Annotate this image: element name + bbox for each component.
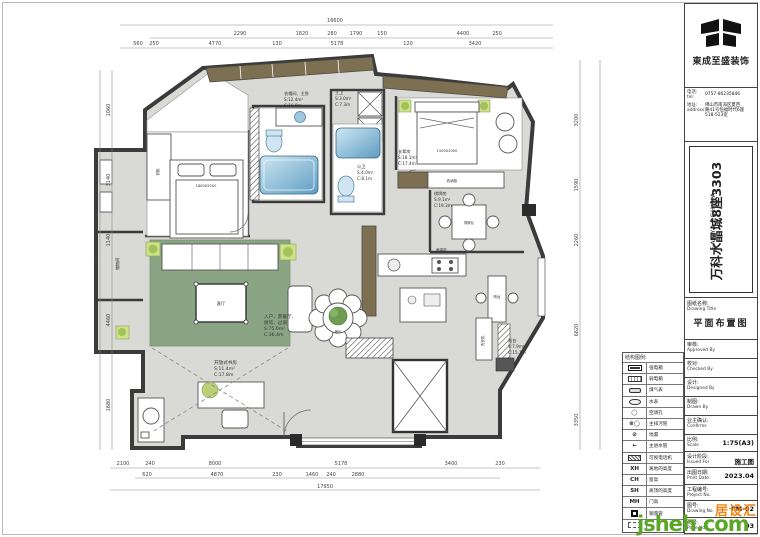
drawing-title: 平面布置图 — [687, 316, 755, 329]
water-inlet-pipe-icon: ← — [623, 441, 647, 451]
room-girth: C:16.8m — [284, 103, 302, 108]
row-label: 业主确认: — [687, 417, 755, 424]
dim: 240 — [145, 461, 155, 467]
legend-row: 强电箱 — [623, 362, 683, 373]
dim: 3420 — [469, 41, 482, 47]
door-height-code: MH — [623, 497, 647, 507]
drawing-title-label: 图纸名称: — [687, 300, 755, 307]
dim: 230 — [495, 461, 505, 467]
row-label: 工程编号: — [687, 486, 755, 493]
room-area: S:11.4m² — [214, 366, 235, 372]
print-date-row: 出图日期: Print Date 2023.04 — [685, 468, 757, 485]
dim: 250 — [149, 41, 159, 47]
room-label: 开放式书房 — [214, 359, 237, 366]
drawing-title-section: 图纸名称: Drawing Title 平面布置图 — [685, 298, 757, 340]
legend-row: 钢落管 — [623, 507, 683, 518]
video-intercom-icon — [623, 453, 647, 463]
room-girth: C:19.3m — [434, 203, 452, 208]
room-area: S:75.0m² — [264, 326, 285, 332]
dim: 4460 — [106, 314, 112, 327]
legend-row: XH离地的高度 — [623, 463, 683, 474]
company-name: 東成至盛装饰 — [685, 54, 757, 67]
address-row: 地址:address: 佛山市南海区夏西 路41号恒福时代6座 518-523室 — [687, 103, 755, 118]
steel-downpipe-icon — [623, 508, 647, 518]
sideboard: 收纳柜 — [398, 172, 504, 188]
dim: 280 — [327, 31, 337, 37]
dashed-box-icon — [623, 520, 647, 530]
drawing-no-value: PM-02 — [731, 505, 754, 513]
legend-row — [623, 519, 683, 530]
water-meter-icon — [623, 397, 647, 407]
legend-label: 钢落管 — [647, 511, 683, 517]
room-girth: C:17.4m — [398, 161, 416, 166]
dim-top-total: 16600 — [327, 18, 343, 24]
dim: 4870 — [211, 472, 224, 478]
legend-row: ←主进水管 — [623, 440, 683, 451]
legend-row: CH窗高 — [623, 474, 683, 485]
legend-label: 强电箱 — [647, 365, 683, 371]
bed-size-label: 1500X2000 — [437, 149, 458, 153]
row-label-en: Designed By — [687, 386, 755, 391]
room-label: 入户、客餐厅、 — [264, 313, 296, 320]
dim-bottom-total: 17950 — [317, 484, 333, 490]
legend-label: 煤气表 — [647, 387, 683, 393]
dim: 2290 — [234, 31, 247, 37]
drawing-title-label-en: Drawing Title — [687, 307, 755, 312]
legend-label: 可视电话机 — [647, 455, 683, 461]
dim: 2880 — [352, 472, 365, 478]
dim: 5178 — [335, 461, 348, 467]
room-area: S:7.9m² — [508, 344, 525, 349]
address-label: 地址:address: — [687, 103, 705, 118]
company-logo-section: 東成至盛装饰 — [685, 4, 757, 88]
ac-hole-icon: ◯ — [623, 408, 647, 418]
room-label: 阳台 — [508, 337, 516, 344]
living-room: 客厅 — [146, 240, 312, 346]
dining-label: 餐厅 — [335, 329, 342, 334]
legend-row: ◯空调孔 — [623, 407, 683, 418]
dim: 1790 — [350, 31, 363, 37]
room-girth: C:36.4m — [264, 332, 284, 338]
room-girth: C:8.1m — [357, 176, 372, 181]
height-below-ceiling-code: SH — [623, 486, 647, 496]
bar-label: 吧台 — [493, 294, 501, 299]
legend-label: 主排污管 — [647, 421, 683, 427]
page-no-row: 页号: Page No. 03 — [685, 518, 757, 535]
legend-label: 离地的高度 — [647, 466, 683, 472]
drawn-by-row: 制图: Drawn By — [685, 397, 757, 416]
address-value: 佛山市南海区夏西 路41号恒福时代6座 518-523室 — [705, 103, 755, 118]
phone-label: 电话:tel: — [687, 90, 705, 100]
floor-drain-icon: ⊘ — [623, 430, 647, 440]
row-label: 校对: — [687, 360, 755, 367]
drawing-sheet: 1800X2000 衣柜 1500X2000 — [0, 0, 760, 537]
dim: 120 — [403, 41, 413, 47]
issued-for-value: 施工图 — [735, 456, 755, 466]
legend-row: 可视电话机 — [623, 452, 683, 463]
dim: 1060 — [106, 104, 112, 117]
checked-by-row: 校对: Checked By — [685, 359, 757, 378]
project-location: SANYA, CHINA — [709, 171, 719, 271]
row-label-en: Confirms — [687, 424, 755, 429]
room-girth: C:17.8m — [214, 372, 234, 378]
row-label: 审核: — [687, 341, 755, 348]
dim: 620 — [142, 472, 152, 478]
dim: 1820 — [296, 31, 309, 37]
dim: 150 — [377, 31, 387, 37]
weak-power-box-icon — [623, 374, 647, 384]
legend-row: ⊗◯主排污管 — [623, 418, 683, 429]
strong-power-box-icon — [623, 363, 647, 373]
designed-by-row: 设计: Designed By — [685, 378, 757, 397]
chess-table-label: 棋牌台 — [464, 220, 474, 225]
dim: 8000 — [209, 461, 222, 467]
room-label: 衣帽间、主卧 — [284, 90, 309, 97]
drawing-no-row: 图号: Drawing No. PM-02 — [685, 501, 757, 518]
room-label: 主卫 — [335, 89, 343, 95]
dim: 250 — [492, 31, 502, 37]
dim: 3400 — [445, 461, 458, 467]
legend-row: ⊘地漏 — [623, 429, 683, 440]
living-label: 客厅 — [217, 300, 225, 307]
height-above-floor-code: XH — [623, 464, 647, 474]
wardrobe-label: 衣柜 — [155, 168, 160, 176]
dim: 2260 — [574, 234, 580, 247]
company-contact-section: 电话:tel: 0757-86235846 地址:address: 佛山市南海区… — [685, 88, 757, 142]
project-no-row: 工程编号: Project No. — [685, 485, 757, 502]
dim: 4770 — [209, 41, 222, 47]
dim: 230 — [272, 472, 282, 478]
room-label: 厨房、过道 — [264, 319, 287, 326]
legend-panel: 结构图例: 强电箱 弱电箱 煤气表 水表 ◯空调孔 ⊗◯主排污管 ⊘地漏 ←主进… — [622, 352, 684, 533]
room-girth: C:7.3m — [335, 102, 350, 107]
floor-plan: 1800X2000 衣柜 1500X2000 — [0, 0, 622, 537]
row-label: 设计: — [687, 379, 755, 386]
scale-value: 1:75(A3) — [722, 439, 754, 447]
phone-row: 电话:tel: 0757-86235846 — [687, 90, 755, 100]
dim: 4400 — [457, 31, 470, 37]
row-label-en: Approved By — [687, 348, 755, 353]
legend-title: 结构图例: — [623, 353, 683, 362]
dim: 1590 — [574, 179, 580, 192]
dim-left-total: 11480 — [94, 254, 100, 270]
project-name-box: 万科水晶城8座3303 SANYA, CHINA — [689, 146, 753, 293]
legend-label: 窗高 — [647, 477, 683, 483]
row-label: 制图: — [687, 398, 755, 405]
dim: 3140 — [106, 174, 112, 187]
legend-row: 水表 — [623, 396, 683, 407]
room-area: S:18.1m² — [398, 155, 417, 160]
room-label: 棋牌房 — [434, 190, 447, 197]
window-height-code: CH — [623, 475, 647, 485]
approved-by-row: 审核: Approved By — [685, 340, 757, 359]
dim: 1140 — [106, 234, 112, 247]
legend-row: MH门高 — [623, 496, 683, 507]
dim: 3200 — [574, 114, 580, 127]
sewage-pipe-icon: ⊗◯ — [623, 419, 647, 429]
legend-label: 主进水管 — [647, 443, 683, 449]
room-area: S:9.1m² — [434, 197, 451, 202]
dim: 6620 — [574, 324, 580, 337]
dim: 560 — [133, 41, 143, 47]
print-date-value: 2023.04 — [724, 472, 754, 480]
owner-confirm-row: 业主确认: Confirms — [685, 416, 757, 435]
scale-row: 比例: Scale 1:75(A3) — [685, 435, 757, 452]
gas-meter-icon — [623, 385, 647, 395]
legend-label: 水表 — [647, 399, 683, 405]
legend-label: 空调孔 — [647, 410, 683, 416]
sideboard-label: 收纳柜 — [447, 178, 458, 183]
row-label-en: Drawn By — [687, 405, 755, 410]
mahjong-label: 麻将机 — [436, 247, 447, 252]
legend-label: 离顶的高度 — [647, 488, 683, 494]
dim: 3350 — [574, 414, 580, 427]
room-area: S:4.0m² — [357, 170, 374, 175]
project-name-section: 万科水晶城8座3303 SANYA, CHINA — [685, 142, 757, 298]
legend-label: 弱电箱 — [647, 376, 683, 382]
dim: 1680 — [106, 399, 112, 412]
washer-label: 洗衣机 — [480, 335, 485, 346]
legend-row: SH离顶的高度 — [623, 485, 683, 496]
company-logo-icon — [699, 18, 743, 48]
room-girth: C:15.1m — [508, 350, 526, 355]
dim: 130 — [272, 41, 282, 47]
laundry-balcony — [138, 398, 164, 442]
title-block: 東成至盛装饰 电话:tel: 0757-86235846 地址:address:… — [684, 3, 758, 534]
legend-label: 门高 — [647, 499, 683, 505]
bed-size-label: 1800X2000 — [196, 184, 217, 188]
dim: 1460 — [306, 472, 319, 478]
dim: 240 — [326, 472, 336, 478]
room-area: S:12.4m² — [284, 97, 303, 102]
phone-value: 0757-86235846 — [705, 90, 755, 100]
room-label: 公卫 — [357, 164, 365, 169]
page-no-value: 03 — [745, 522, 754, 530]
room-label: 长辈房 — [398, 148, 411, 155]
issued-for-row: 设计阶段: Issued For 施工图 — [685, 452, 757, 469]
dim: 5178 — [331, 41, 344, 47]
legend-row: 煤气表 — [623, 384, 683, 395]
room-area: S:3.0m² — [335, 96, 352, 101]
storage-label: 储物间 — [114, 258, 121, 271]
dim: 2100 — [117, 461, 130, 467]
row-label-en: Checked By — [687, 367, 755, 372]
master-bathroom — [250, 108, 322, 200]
legend-label: 地漏 — [647, 432, 683, 438]
row-label-en: Project No. — [687, 493, 755, 498]
legend-row: 弱电箱 — [623, 373, 683, 384]
